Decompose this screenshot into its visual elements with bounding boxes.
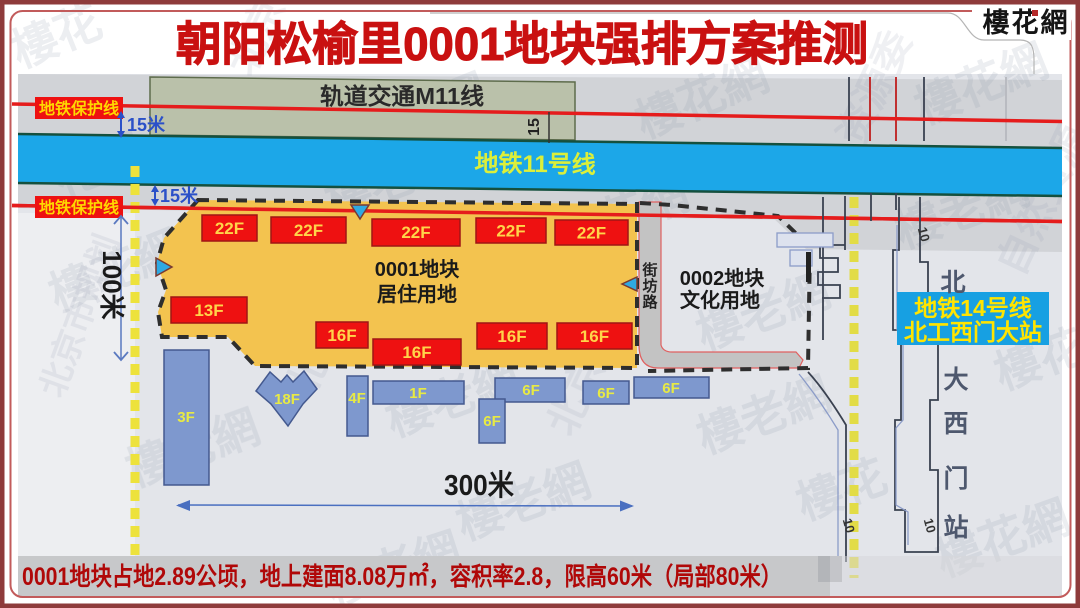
svg-text:22F: 22F	[577, 224, 606, 243]
svg-text:北: 北	[940, 269, 965, 297]
svg-text:地铁保护线: 地铁保护线	[39, 99, 119, 118]
svg-text:15: 15	[526, 118, 543, 136]
svg-text:4F: 4F	[348, 390, 366, 407]
svg-text:文化用地: 文化用地	[680, 288, 760, 312]
svg-text:100米: 100米	[97, 250, 127, 319]
svg-text:18F: 18F	[274, 391, 300, 408]
svg-text:门: 门	[943, 464, 968, 493]
svg-text:6F: 6F	[597, 385, 615, 402]
svg-text:0001地块: 0001地块	[375, 258, 460, 281]
svg-text:站: 站	[943, 514, 968, 542]
svg-text:16F: 16F	[580, 327, 609, 346]
svg-text:坊: 坊	[642, 277, 657, 295]
svg-text:6F: 6F	[522, 382, 540, 399]
svg-text:16F: 16F	[402, 343, 431, 362]
svg-text:6F: 6F	[662, 380, 680, 397]
svg-text:22F: 22F	[215, 219, 244, 238]
svg-text:6F: 6F	[483, 413, 501, 430]
svg-text:路: 路	[642, 293, 658, 311]
svg-text:大: 大	[943, 366, 968, 394]
svg-text:0001地块占地2.89公顷，地上建面8.08万㎡，容积率2: 0001地块占地2.89公顷，地上建面8.08万㎡，容积率2.8，限高60米（局…	[22, 562, 782, 591]
svg-text:居住用地: 居住用地	[377, 282, 457, 306]
svg-text:轨道交通M11线: 轨道交通M11线	[320, 83, 484, 109]
svg-text:0002地块: 0002地块	[680, 267, 765, 290]
svg-text:22F: 22F	[401, 223, 430, 242]
svg-text:朝阳松榆里0001地块强排方案推测: 朝阳松榆里0001地块强排方案推测	[176, 18, 868, 70]
svg-text:地铁14号线: 地铁14号线	[914, 295, 1032, 321]
svg-text:街: 街	[641, 261, 657, 279]
svg-text:15米: 15米	[127, 114, 166, 135]
svg-text:地铁保护线: 地铁保护线	[39, 198, 119, 217]
svg-text:22F: 22F	[294, 221, 323, 240]
svg-text:樓花網: 樓花網	[983, 7, 1070, 38]
svg-text:16F: 16F	[497, 327, 526, 346]
svg-text:西: 西	[943, 410, 968, 438]
svg-text:地铁11号线: 地铁11号线	[474, 150, 596, 178]
svg-text:16F: 16F	[327, 326, 356, 345]
svg-text:北工西门大站: 北工西门大站	[904, 319, 1042, 345]
svg-text:13F: 13F	[194, 301, 223, 320]
svg-text:1F: 1F	[409, 385, 427, 402]
svg-text:15米: 15米	[160, 185, 199, 206]
svg-text:22F: 22F	[496, 222, 525, 241]
svg-text:300米: 300米	[444, 469, 514, 502]
svg-text:3F: 3F	[177, 409, 195, 426]
